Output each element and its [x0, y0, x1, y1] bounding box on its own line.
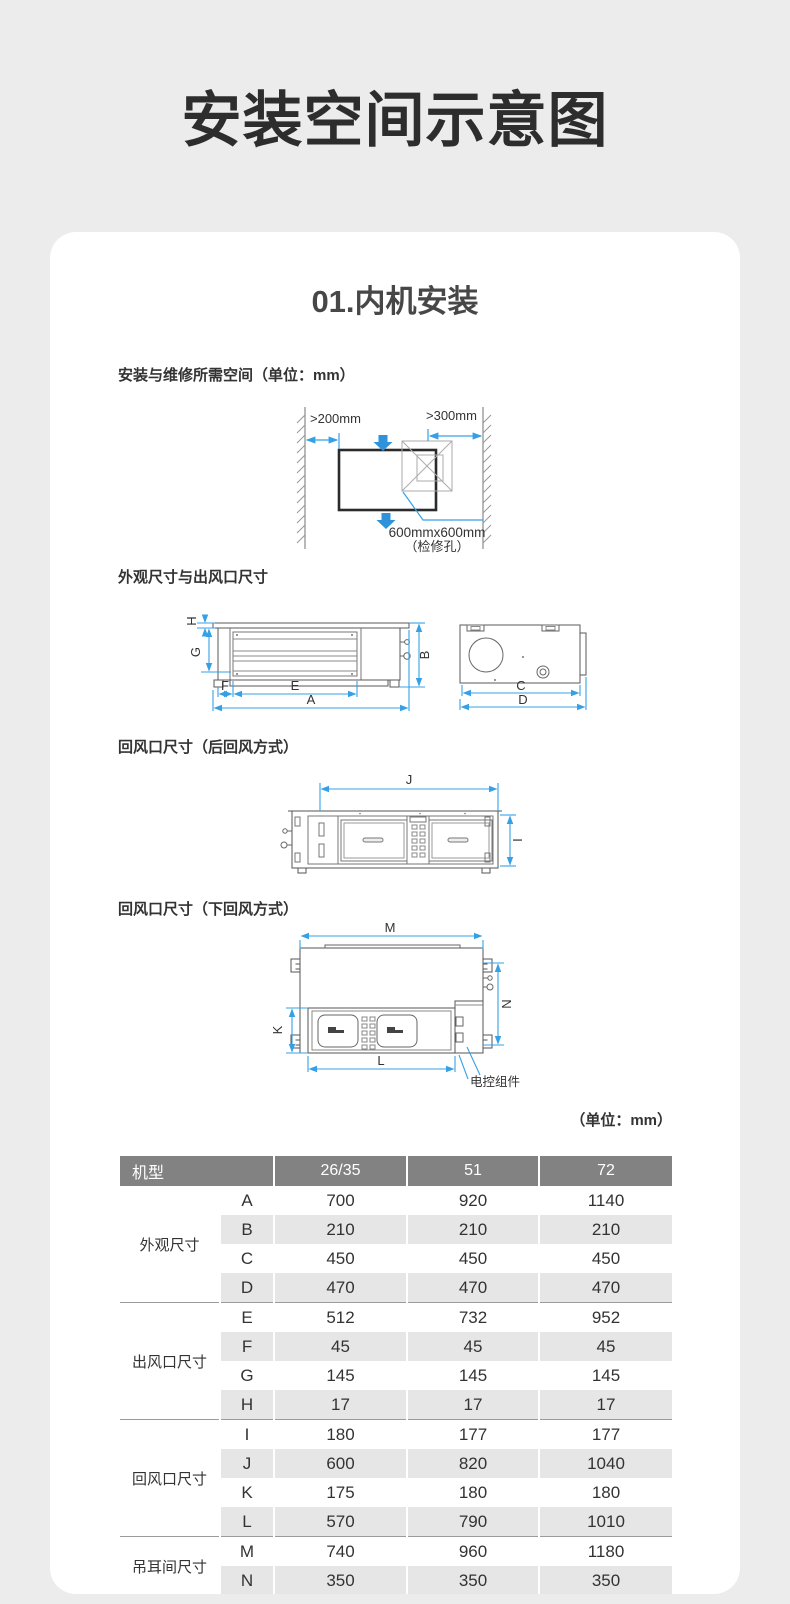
dim-key: L — [220, 1507, 274, 1537]
dim-value: 1040 — [539, 1449, 672, 1478]
dim-value: 952 — [539, 1303, 672, 1333]
dim-value: 145 — [407, 1361, 539, 1390]
dim-key: B — [220, 1215, 274, 1244]
dim-value: 145 — [539, 1361, 672, 1390]
group-label-appearance: 外观尺寸 — [120, 1186, 220, 1303]
dim-f-label: F — [221, 678, 229, 693]
dim-key: M — [220, 1537, 274, 1567]
table-row: 出风口尺寸 E 512 732 952 — [120, 1303, 672, 1333]
dim-key: K — [220, 1478, 274, 1507]
table-row: 回风口尺寸 I 180 177 177 — [120, 1420, 672, 1450]
dim-value: 350 — [407, 1566, 539, 1594]
dim-value: 820 — [407, 1449, 539, 1478]
right-clearance-value: >300mm — [426, 408, 477, 423]
dim-value: 740 — [274, 1537, 407, 1567]
dim-value: 960 — [407, 1537, 539, 1567]
section-title: 01.内机安装 — [50, 232, 740, 321]
group-label-hanger: 吊耳间尺寸 — [120, 1537, 220, 1595]
dim-value: 17 — [407, 1390, 539, 1420]
dim-value: 470 — [407, 1273, 539, 1303]
control-box-label: 电控组件 — [470, 1075, 520, 1089]
dim-e-label: E — [291, 678, 300, 693]
dim-key: F — [220, 1332, 274, 1361]
dim-value: 450 — [274, 1244, 407, 1273]
dim-b-label: B — [417, 651, 432, 660]
dim-value: 512 — [274, 1303, 407, 1333]
dim-value: 177 — [407, 1420, 539, 1450]
dim-key: E — [220, 1303, 274, 1333]
dim-l-label: L — [377, 1053, 384, 1068]
dim-d-label: D — [518, 692, 527, 707]
dim-value: 180 — [274, 1420, 407, 1450]
dim-value: 45 — [407, 1332, 539, 1361]
dim-key: D — [220, 1273, 274, 1303]
airflow-arrow-down-icon — [374, 435, 393, 451]
dim-value: 600 — [274, 1449, 407, 1478]
dim-value: 920 — [407, 1186, 539, 1215]
dim-key: A — [220, 1186, 274, 1215]
left-clearance-value: >200mm — [310, 411, 361, 426]
dim-j-label: J — [406, 772, 413, 787]
electric-control-box — [455, 1001, 483, 1053]
dim-h-label: H — [185, 616, 199, 625]
outline-label: 外观尺寸与出风口尺寸 — [118, 569, 740, 587]
dim-value: 350 — [274, 1566, 407, 1594]
outline-diagram: H G B F E A C D — [185, 595, 605, 715]
table-row: 外观尺寸 A 700 920 1140 — [120, 1186, 672, 1215]
content-card: 01.内机安装 安装与维修所需空间（单位：mm） — [50, 232, 740, 1594]
column-header-51: 51 — [407, 1156, 539, 1186]
indoor-unit-outline — [339, 450, 436, 510]
left-wall — [297, 407, 305, 549]
service-space-diagram: >200mm >300mm 600mmx600mm （检修孔） — [280, 393, 560, 553]
dim-value: 1010 — [539, 1507, 672, 1537]
dim-value: 350 — [539, 1566, 672, 1594]
group-label-return: 回风口尺寸 — [120, 1420, 220, 1537]
service-space-label: 安装与维修所需空间（单位：mm） — [118, 367, 740, 385]
dim-value: 210 — [539, 1215, 672, 1244]
dim-value: 180 — [407, 1478, 539, 1507]
dim-a-label: A — [307, 692, 316, 707]
dimension-table: 机型 26/35 51 72 外观尺寸 A 700 920 1140 B 210 — [120, 1156, 672, 1594]
dim-value: 450 — [407, 1244, 539, 1273]
dim-key: G — [220, 1361, 274, 1390]
dim-k-label: K — [270, 1025, 285, 1034]
dim-value: 17 — [274, 1390, 407, 1420]
bottom-return-label: 回风口尺寸（下回风方式） — [118, 901, 740, 919]
front-view-drawing — [213, 623, 410, 687]
page-title: 安装空间示意图 — [0, 88, 790, 154]
dim-value: 180 — [539, 1478, 672, 1507]
dim-value: 45 — [539, 1332, 672, 1361]
side-view-drawing — [460, 625, 586, 683]
dim-value: 450 — [539, 1244, 672, 1273]
dim-value: 175 — [274, 1478, 407, 1507]
dim-value: 570 — [274, 1507, 407, 1537]
rear-return-diagram: J I — [280, 765, 560, 885]
dim-value: 790 — [407, 1507, 539, 1537]
dimension-table-wrap: 机型 26/35 51 72 外观尺寸 A 700 920 1140 B 210 — [120, 1156, 672, 1594]
dim-value: 45 — [274, 1332, 407, 1361]
leader-line — [459, 1055, 468, 1079]
rear-view-drawing — [281, 811, 502, 873]
group-label-outlet: 出风口尺寸 — [120, 1303, 220, 1420]
dim-g-label: G — [188, 647, 203, 657]
dim-value: 177 — [539, 1420, 672, 1450]
model-header: 机型 — [120, 1156, 274, 1186]
dim-value: 210 — [407, 1215, 539, 1244]
dim-value: 470 — [274, 1273, 407, 1303]
dim-m-label: M — [385, 923, 396, 935]
dim-c-label: C — [516, 678, 525, 693]
column-header-72: 72 — [539, 1156, 672, 1186]
table-header-row: 机型 26/35 51 72 — [120, 1156, 672, 1186]
page-header: 安装空间示意图 — [0, 0, 790, 154]
hole-name-label: （检修孔） — [404, 539, 469, 553]
dim-value: 1140 — [539, 1186, 672, 1215]
hole-size-value: 600mmx600mm — [389, 525, 486, 540]
rear-return-label: 回风口尺寸（后回风方式） — [118, 739, 740, 757]
column-header-26-35: 26/35 — [274, 1156, 407, 1186]
dim-value: 145 — [274, 1361, 407, 1390]
dim-value: 700 — [274, 1186, 407, 1215]
bottom-return-diagram: M K N L 电控组件 — [270, 923, 550, 1093]
dim-i-label: I — [510, 838, 525, 842]
dim-value: 470 — [539, 1273, 672, 1303]
table-row: 吊耳间尺寸 M 740 960 1180 — [120, 1537, 672, 1567]
table-unit-note: （单位：mm） — [50, 1109, 672, 1130]
dim-key: C — [220, 1244, 274, 1273]
bottom-view-drawing — [291, 945, 493, 1053]
dim-key: J — [220, 1449, 274, 1478]
dim-value: 17 — [539, 1390, 672, 1420]
dim-key: N — [220, 1566, 274, 1594]
dim-n-label: N — [499, 999, 514, 1008]
dim-value: 1180 — [539, 1537, 672, 1567]
dim-key: I — [220, 1420, 274, 1450]
dim-value: 210 — [274, 1215, 407, 1244]
dim-value: 732 — [407, 1303, 539, 1333]
dim-key: H — [220, 1390, 274, 1420]
